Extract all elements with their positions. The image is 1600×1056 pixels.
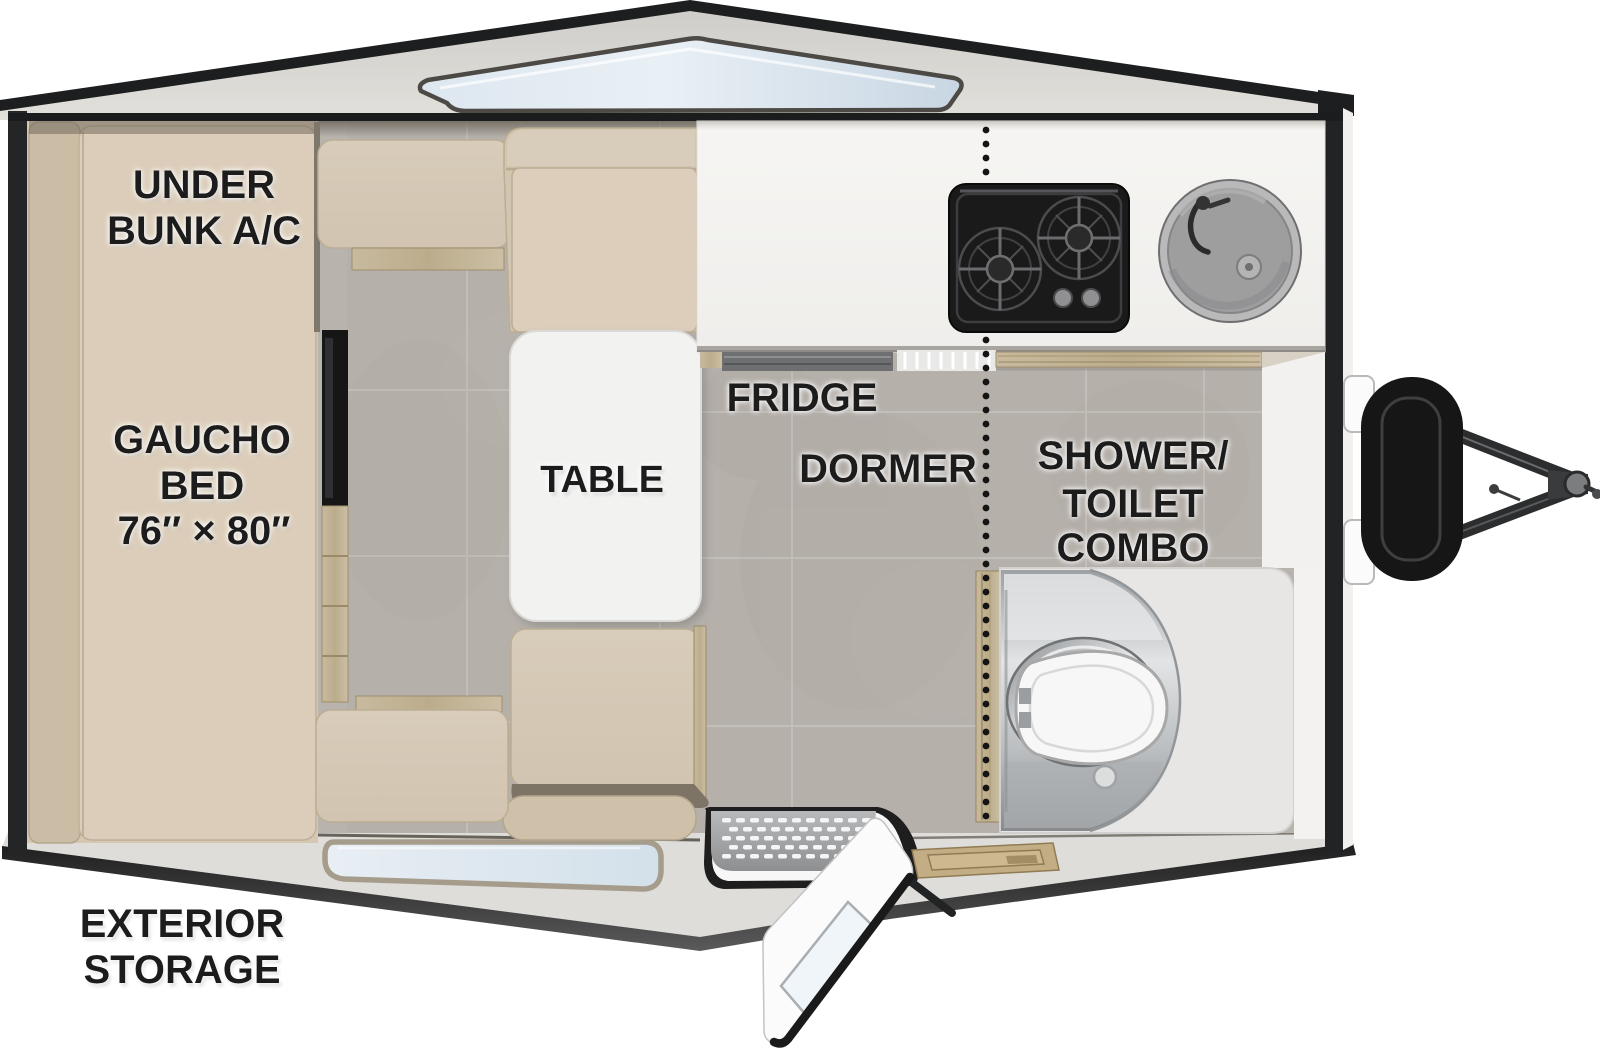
- svg-text:76″ × 80″: 76″ × 80″: [118, 509, 291, 553]
- svg-text:EXTERIOR: EXTERIOR: [80, 902, 285, 946]
- svg-text:STORAGE: STORAGE: [83, 948, 280, 992]
- svg-text:TABLE: TABLE: [540, 459, 664, 501]
- svg-text:SHOWER/: SHOWER/: [1037, 434, 1228, 478]
- svg-text:BUNK A/C: BUNK A/C: [107, 209, 301, 253]
- svg-text:GAUCHO: GAUCHO: [113, 418, 291, 462]
- svg-text:BED: BED: [160, 464, 244, 508]
- svg-text:FRIDGE: FRIDGE: [726, 376, 877, 420]
- svg-text:COMBO: COMBO: [1056, 526, 1209, 570]
- svg-text:TOILET: TOILET: [1062, 482, 1203, 526]
- svg-text:DORMER: DORMER: [799, 447, 977, 491]
- svg-text:UNDER: UNDER: [133, 163, 275, 207]
